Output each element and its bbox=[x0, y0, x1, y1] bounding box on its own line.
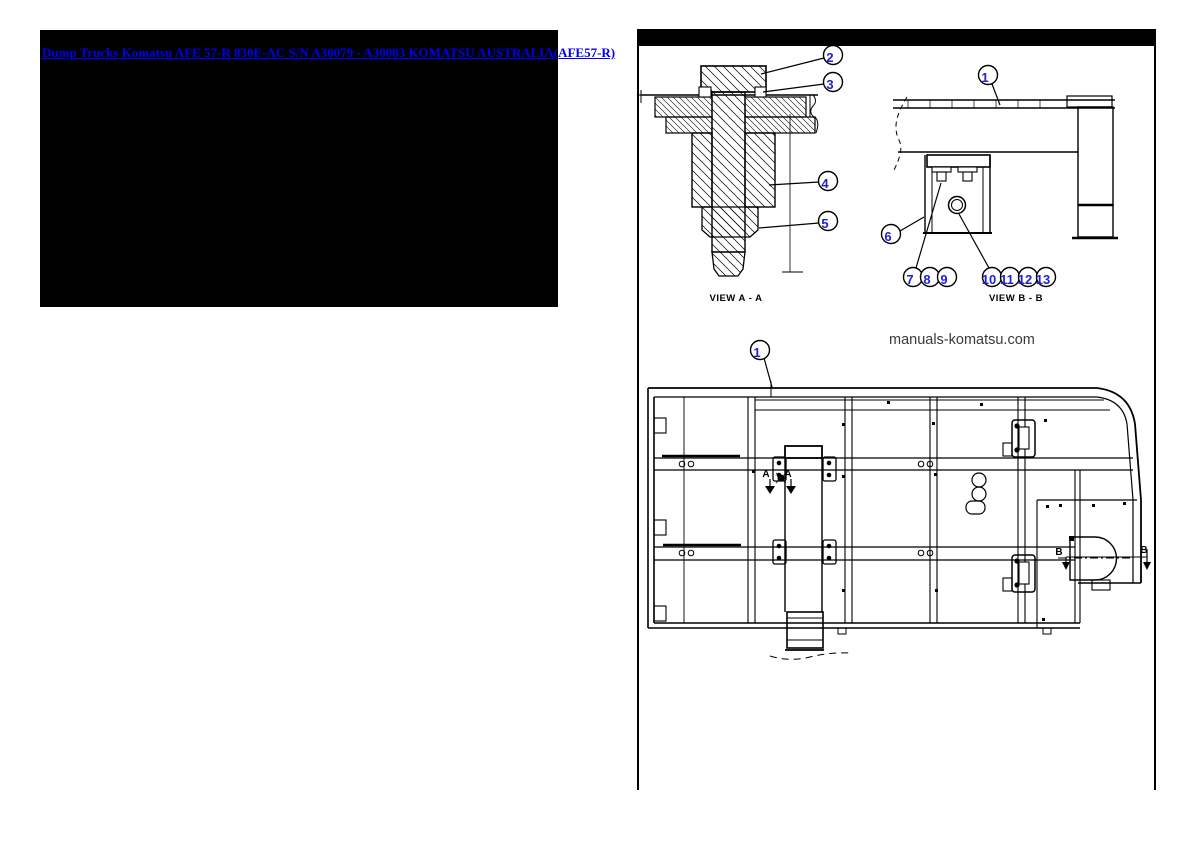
callout-13[interactable]: 13 bbox=[1036, 268, 1056, 288]
svg-text:1: 1 bbox=[753, 345, 760, 360]
svg-text:13: 13 bbox=[1036, 272, 1050, 287]
view-b-caption: VIEW B - B bbox=[971, 293, 1061, 304]
callout-12[interactable]: 12 bbox=[1018, 268, 1038, 288]
callout-5[interactable]: 5 bbox=[759, 212, 838, 232]
link-banner: Dump Trucks Komatsu AFE 57-R 830E-AC S/N… bbox=[40, 30, 558, 307]
callout-11[interactable]: 11 bbox=[1000, 268, 1019, 288]
svg-text:B: B bbox=[1055, 547, 1062, 558]
view-a-a-drawing bbox=[637, 66, 818, 276]
svg-text:B: B bbox=[1140, 545, 1147, 556]
svg-text:5: 5 bbox=[821, 216, 828, 231]
callout-3[interactable]: 3 bbox=[763, 73, 843, 93]
svg-text:7: 7 bbox=[906, 272, 913, 287]
view-b-b-drawing bbox=[893, 96, 1118, 238]
svg-text:A: A bbox=[784, 469, 791, 480]
parts-catalog-link[interactable]: Dump Trucks Komatsu AFE 57-R 830E-AC S/N… bbox=[42, 45, 558, 60]
svg-text:11: 11 bbox=[1000, 272, 1014, 287]
callout-1[interactable]: 1 bbox=[751, 341, 773, 388]
svg-text:A: A bbox=[762, 469, 769, 480]
callout-2[interactable]: 2 bbox=[761, 46, 843, 74]
callout-9[interactable]: 9 bbox=[938, 268, 957, 288]
callout-6[interactable]: 6 bbox=[882, 217, 925, 244]
page: Dump Trucks Komatsu AFE 57-R 830E-AC S/N… bbox=[0, 0, 1190, 842]
watermark-text: manuals-komatsu.com bbox=[889, 332, 1035, 348]
callout-1[interactable]: 1 bbox=[979, 66, 1001, 106]
callout-8[interactable]: 8 bbox=[921, 268, 940, 288]
callout-10[interactable]: 10 bbox=[959, 214, 1002, 287]
svg-text:10: 10 bbox=[982, 272, 996, 287]
callout-4[interactable]: 4 bbox=[769, 172, 838, 192]
svg-text:2: 2 bbox=[826, 50, 833, 65]
svg-text:8: 8 bbox=[923, 272, 930, 287]
svg-text:3: 3 bbox=[826, 77, 833, 92]
frame-plan-drawing bbox=[648, 381, 1151, 659]
view-a-caption: VIEW A - A bbox=[691, 293, 781, 304]
svg-text:1: 1 bbox=[981, 70, 988, 85]
section-markers: AABB bbox=[762, 469, 1147, 558]
svg-text:6: 6 bbox=[884, 229, 891, 244]
diagram-panel: AABB 123456789101112131 VIEW A - A VIEW … bbox=[637, 29, 1156, 790]
svg-text:12: 12 bbox=[1018, 272, 1032, 287]
diagram-header-bar bbox=[637, 29, 1156, 46]
technical-drawing: AABB 123456789101112131 bbox=[637, 46, 1156, 790]
svg-text:4: 4 bbox=[821, 176, 829, 191]
svg-text:9: 9 bbox=[940, 272, 947, 287]
